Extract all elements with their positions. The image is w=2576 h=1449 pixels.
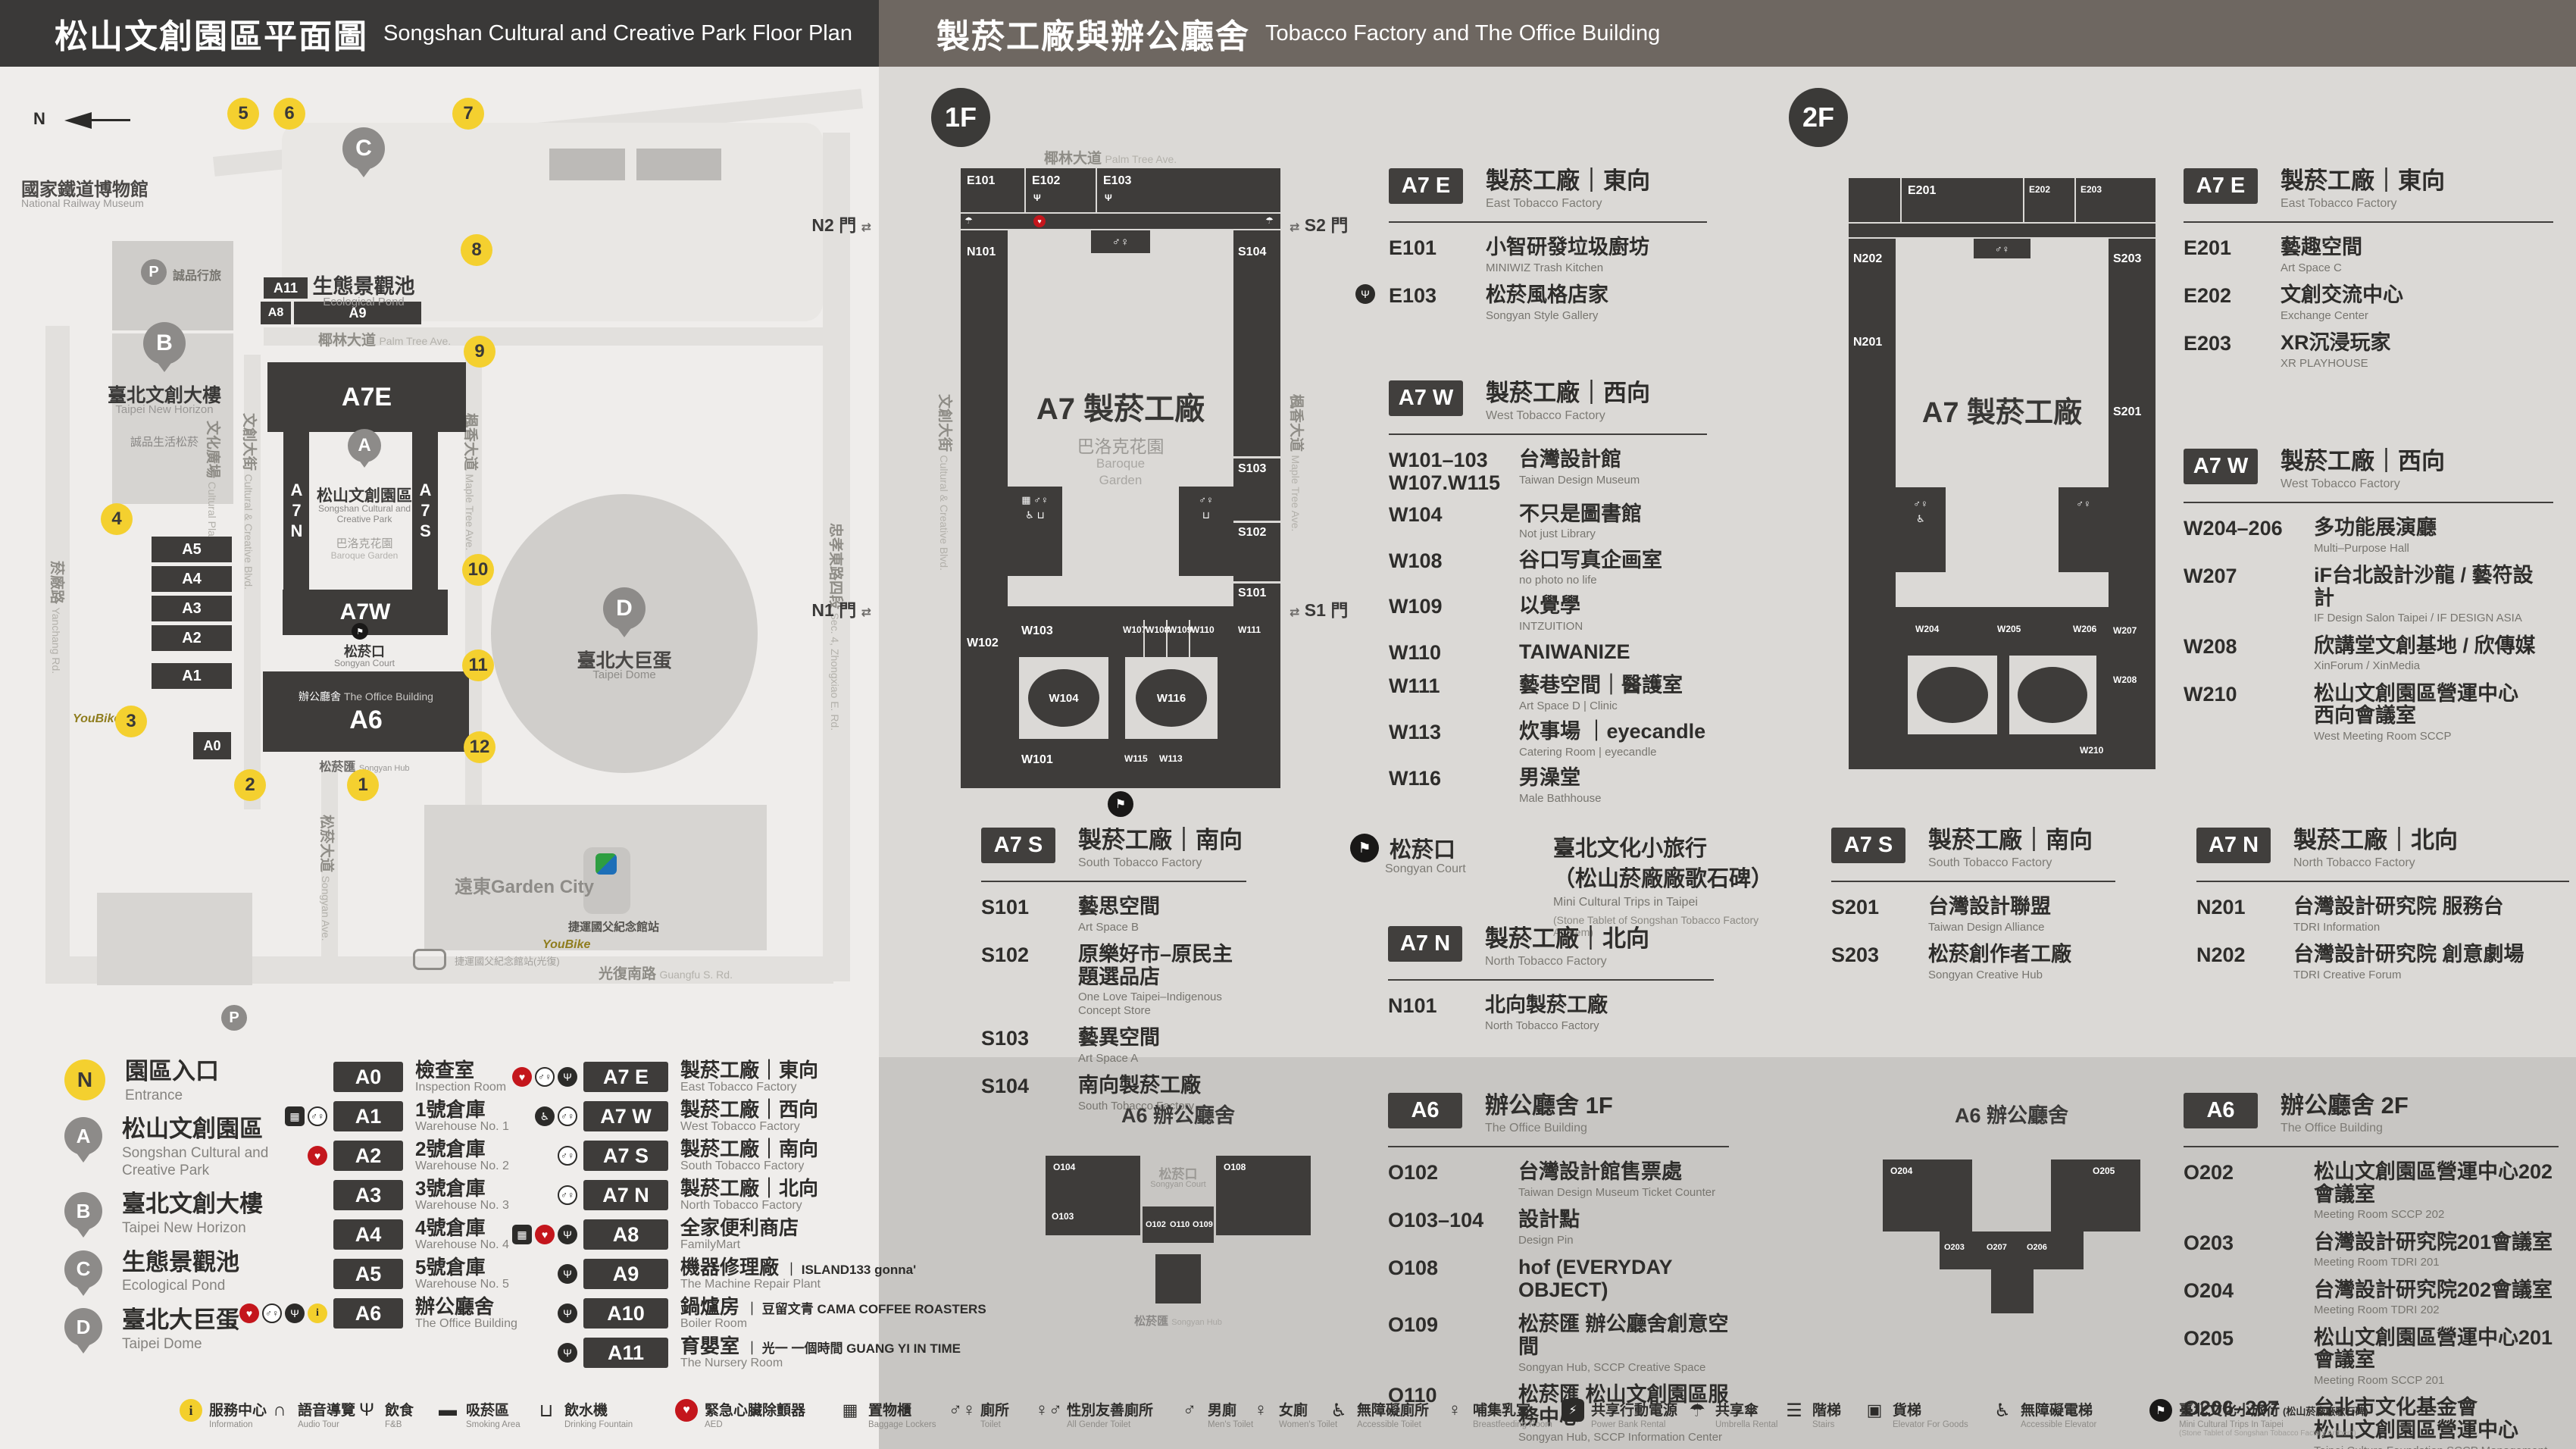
footer-icon: ⚑	[2149, 1399, 2172, 1422]
section-divider	[2184, 1146, 2559, 1147]
section-chip: A7 S	[981, 828, 1055, 863]
legend-row-zh: 1號倉庫	[415, 1098, 485, 1121]
section-en: West Tobacco Factory	[2281, 477, 2445, 491]
legend-row-icons: Ψ	[491, 1264, 583, 1284]
section-chip: A7 N	[1388, 926, 1462, 962]
section-zh: 製菸工廠｜北向	[2293, 828, 2458, 853]
street-zhongxiao-en: Sec. 4, Zhongxiao E. Rd.	[829, 612, 841, 731]
room-separator	[1166, 620, 1168, 662]
legend-pin-zh: 松山文創園區	[122, 1116, 263, 1142]
umbrella-icon: ☂	[1265, 215, 1274, 226]
legend-pin-row: N 園區入口 Entrance	[64, 1059, 292, 1104]
room-n101-label: N101	[967, 246, 996, 259]
room-zh: 台灣設計研究院202會議室	[2314, 1279, 2553, 1302]
room-zh: 設計點	[1518, 1209, 1580, 1231]
wing-north	[961, 230, 1008, 788]
legend-building-chip: A7 W	[583, 1101, 668, 1131]
room-code: O205	[2184, 1327, 2314, 1388]
section-en: East Tobacco Factory	[2281, 197, 2445, 211]
parking-icon-2: P	[221, 1005, 247, 1031]
footer-icon: ☂	[1686, 1399, 1708, 1422]
section-divider	[2184, 502, 2553, 503]
youbike-label-2: YouBike	[73, 712, 120, 726]
legend-building-chip: A7 N	[583, 1180, 668, 1210]
footer-en: F&B	[385, 1420, 417, 1429]
room-w210-label: W210	[2080, 745, 2103, 756]
legend-row-en: The Nursery Room	[680, 1357, 961, 1369]
entrance-marker: 6	[274, 98, 305, 130]
service-wing-east-icons: ♂♀⊔	[1182, 493, 1230, 522]
room-code: S101	[981, 896, 1078, 934]
room-zh: 松山文創園區營運中心202會議室	[2314, 1161, 2559, 1206]
a6-stem	[1155, 1254, 1201, 1303]
footer-zh: 性別友善廁所	[1067, 1399, 1153, 1419]
directory-row: S102 原樂好市–原民主題選品店 One Love Taipei–Indige…	[981, 944, 1246, 1017]
footer-item: Ψ 飲食 F&B	[355, 1399, 417, 1429]
map-pin-c-label: C	[355, 136, 372, 161]
street-maple: 楓香大道 Maple Tree Ave.	[461, 413, 482, 550]
footer-en: Elevator For Goods	[1893, 1420, 1968, 1429]
north-label: N	[33, 109, 45, 129]
gate-n2-label: N2 門	[811, 215, 856, 235]
room-separator	[1143, 620, 1145, 662]
section-en: East Tobacco Factory	[1486, 197, 1650, 211]
legend-pin-zh: 臺北文創大樓	[122, 1191, 263, 1217]
room-en: Meeting Room TDRI 201	[2314, 1256, 2553, 1269]
floor-1f-badge: 1F	[931, 88, 990, 147]
entrance-marker: 3	[115, 706, 147, 737]
footer-zh: 臺北文化小旅行	[2179, 1399, 2280, 1419]
room-zh: 台灣設計研究院 服務台	[2293, 896, 2504, 919]
room-n201-label: N201	[1853, 336, 1882, 349]
footer-en: Information	[209, 1420, 270, 1429]
footer-icon-legend: i 服務中心 Information ∩ 語音導覽 Audio Tour Ψ 飲…	[0, 1396, 2576, 1449]
room-e102-label: E102	[1032, 174, 1060, 188]
footer-icon: Ψ	[355, 1399, 378, 1422]
a6-hub-line: 松菸匯 Songyan Hub	[1030, 1313, 1326, 1329]
room-zh: 松山文創園區營運中心	[2314, 683, 2518, 706]
legend-row-brand: ｜ 光一 一個時間 GUANG YI IN TIME	[746, 1341, 961, 1356]
footer-icon: ♿	[1991, 1399, 2014, 1422]
footer-icon: ▣	[1863, 1399, 1886, 1422]
section-header: A7 E 製菸工廠｜東向 East Tobacco Factory	[1389, 168, 1707, 211]
section-en: South Tobacco Factory	[1078, 856, 1243, 870]
directory-row: E201 藝趣空間 Art Space C	[2184, 236, 2553, 274]
room-zh: 藝巷空間｜醫護室	[1519, 674, 1683, 697]
footer-zh: 男廁	[1208, 1399, 1236, 1419]
directory-row: O205 松山文創園區營運中心201會議室 Meeting Room SCCP …	[2184, 1327, 2559, 1388]
directory-row: O204 台灣設計研究院202會議室 Meeting Room TDRI 202	[2184, 1279, 2559, 1317]
room-en: TDRI Information	[2293, 921, 2504, 934]
map-block-a1: A1	[152, 663, 232, 689]
room-en: Art Space B	[1078, 921, 1160, 934]
building-block	[549, 149, 625, 180]
toilet-icon: ♂♀	[262, 1303, 282, 1323]
directory-row: S101 藝思空間 Art Space B	[981, 896, 1246, 934]
room-zh: 谷口写真企画室	[1519, 549, 1662, 572]
street-cultural-zh: 文創大街	[241, 413, 257, 471]
footer-zh: 共享傘	[1715, 1399, 1758, 1419]
footer-item: ⚡ 共享行動電源 Power Bank Rental	[1562, 1399, 1680, 1429]
legend-factory-row: Ψ A10 鍋爐房｜ 豆留文青 CAMA COFFEE ROASTERS Boi…	[491, 1297, 986, 1329]
fnb-icon: Ψ	[558, 1067, 577, 1087]
room-en: Songyan Hub, SCCP Creative Space	[1518, 1361, 1729, 1374]
legend-factory-row: ♂♀ A7 S 製菸工廠｜南向 South Tobacco Factory	[491, 1140, 986, 1172]
room-w113-label: W113	[1159, 753, 1183, 764]
court-line2: （松山菸廠廠歌石碑）	[1553, 861, 1773, 893]
footer-icon: ▬	[436, 1399, 459, 1422]
directory-row: W210 松山文創園區營運中心西向會議室 West Meeting Room S…	[2184, 683, 2553, 743]
map-pin-a: A	[348, 429, 381, 462]
aed-icon: ♥	[512, 1067, 532, 1087]
parking-label: P	[148, 264, 158, 281]
footer-item: ♂ 男廁 Men's Toilet	[1178, 1399, 1253, 1429]
footer-item: ♀♂ 性別友善廁所 All Gender Toilet	[1037, 1399, 1156, 1429]
room-en: IF Design Salon Taipei / IF DESIGN ASIA	[2314, 612, 2553, 624]
footer-zh: 服務中心	[209, 1399, 267, 1419]
legend-building-chip: A1	[333, 1101, 403, 1131]
room-w110-label: W110	[1191, 624, 1215, 635]
legend-row-zh: 育嬰室	[680, 1335, 739, 1357]
fnb-icon: Ψ	[1033, 192, 1041, 203]
room-zh: 台灣設計館售票處	[1518, 1161, 1715, 1184]
room-w116-label: W116	[1157, 692, 1186, 705]
entrance-marker: 11	[462, 649, 494, 681]
floor-2f-badge: 2F	[1789, 88, 1848, 147]
room-o206-label: O206	[2027, 1243, 2047, 1252]
section-zh: 辦公廳舍 2F	[2281, 1093, 2409, 1119]
legend-row-zh: 檢查室	[415, 1059, 474, 1081]
room-w205-label: W205	[1997, 624, 2021, 634]
left-title-en: Songshan Cultural and Creative Park Floo…	[383, 21, 852, 46]
directory-row: W111 藝巷空間｜醫護室 Art Space D | Clinic	[1389, 674, 1707, 712]
room-separator	[1189, 620, 1190, 662]
legend-row-zh: 全家便利商店	[680, 1216, 799, 1239]
legend-row-zh: 4號倉庫	[415, 1216, 485, 1239]
footer-en: Accessible Toilet	[1357, 1420, 1432, 1429]
gate-n1-label: N1 門	[811, 600, 856, 620]
room-code: S203	[1831, 944, 1928, 981]
directory-row: E203 XR沉浸玩家 XR PLAYHOUSE	[2184, 332, 2553, 370]
lockers-icon: ▦	[1021, 494, 1030, 505]
gate-n1: N1 門 ⇄	[788, 596, 871, 621]
oval-hall-2f	[1917, 667, 1988, 723]
legend-warehouses: A0 檢查室 Inspection Room ▦♂♀ A1 1號倉庫 Wareh…	[267, 1061, 517, 1329]
legend-building-chip: A2	[333, 1141, 403, 1171]
room-zh: 文創交流中心	[2281, 284, 2403, 307]
accessible-icon: ♿	[1916, 513, 1925, 524]
entrance-marker: 2	[234, 769, 266, 801]
section-en: The Office Building	[1485, 1122, 1613, 1135]
room-zh: 松菸創作者工廠	[1928, 944, 2071, 966]
room-separator	[1233, 521, 1280, 523]
section-chip: A7 W	[1389, 380, 1463, 416]
plan1f-street-right-en: Maple Tree Ave.	[1290, 455, 1302, 531]
room-zh: 台灣設計聯盟	[1928, 896, 2051, 919]
wing-south-2f	[2109, 239, 2156, 769]
room-code: E202	[2184, 284, 2281, 322]
legend-building-chip: A3	[333, 1180, 403, 1210]
a6-2f-stem	[1991, 1269, 2034, 1313]
room-en: MINIWIZ Trash Kitchen	[1486, 261, 1649, 274]
directory-row: W204–206 多功能展演廳 Multi–Purpose Hall	[2184, 517, 2553, 555]
room-en: Songyan Style Gallery	[1486, 309, 1608, 322]
map-block-a2: A2	[152, 625, 232, 651]
north-arrow-icon	[56, 112, 92, 129]
section-header: A6 辦公廳舍 2F The Office Building	[2184, 1093, 2559, 1135]
room-code: S103	[981, 1027, 1078, 1065]
section-zh: 製菸工廠｜南向	[1928, 828, 2093, 853]
directory-row: E202 文創交流中心 Exchange Center	[2184, 284, 2553, 322]
legend-row-icons: Ψ	[491, 1303, 583, 1323]
room-code: W116	[1389, 767, 1441, 790]
section-en: North Tobacco Factory	[1485, 955, 1649, 969]
service-wing-west-icons: ▦ ♂♀♿ ⊔	[1011, 493, 1059, 522]
room-o203-label: O203	[1944, 1243, 1965, 1252]
a6-plan-2f: O204 O205 O203 O207 O206	[1864, 1122, 2159, 1349]
footer-en: Audio Tour	[298, 1420, 358, 1429]
footer-icon: ⚡	[1562, 1399, 1584, 1422]
room-w101-label: W101	[1021, 753, 1053, 767]
street-yanchang-zh: 菸廠路	[48, 561, 64, 604]
map-block-a4: A4	[152, 566, 232, 592]
legend-pin-letter: N	[77, 1068, 92, 1092]
footer-en: Smoking Area	[466, 1420, 521, 1429]
footer-zh: 貨梯	[1893, 1399, 1921, 1419]
section-a7w-1f: A7 W 製菸工廠｜西向 West Tobacco Factory W101–1…	[1389, 380, 1707, 813]
poster: 松山文創園區平面圖 Songshan Cultural and Creative…	[0, 0, 2576, 1449]
footer-zh: 緊急心臟除顫器	[705, 1399, 805, 1419]
wing-north-2f	[1849, 239, 1896, 769]
entrance-marker-number: 1	[358, 775, 367, 796]
room-code: O102	[1388, 1161, 1518, 1199]
room-en: no photo no life	[1519, 574, 1662, 587]
room-n202-label: N202	[1853, 252, 1882, 266]
cinema-block	[97, 893, 252, 985]
room-code: O108	[1388, 1257, 1518, 1303]
gate-arrows-icon: ⇄	[1290, 606, 1299, 619]
entrance-marker-number: 7	[463, 103, 473, 124]
legend-building-chip: A7 S	[583, 1141, 668, 1171]
floorplan-2f: E201 E202 E203 N202 N201 S203 S201 ♂♀ ♂♀…	[1849, 178, 2156, 769]
section-zh: 製菸工廠｜南向	[1078, 828, 1243, 853]
map-dome-en: Taipei Dome	[564, 668, 685, 681]
map-court-icon: ⚑	[352, 623, 368, 640]
entrance-marker: 7	[452, 98, 484, 130]
section-a7s-2f: A7 S 製菸工廠｜南向 South Tobacco Factory S201 …	[1831, 828, 2115, 991]
footer-item: ♀ 哺集乳室 Breastfeeding Room	[1443, 1399, 1552, 1429]
toilet-icon: ♂♀	[1199, 494, 1214, 505]
room-code: W208	[2184, 635, 2314, 673]
left-title-zh: 松山文創園區平面圖	[55, 9, 368, 58]
legend-row-zh: 5號倉庫	[415, 1256, 485, 1278]
accessible-icon: ♿	[1025, 509, 1034, 521]
section-chip: A7 S	[1831, 828, 1905, 863]
court-zh: 松菸口	[1390, 832, 1455, 864]
bus-stop-label: 捷運國父紀念館站(光復)	[455, 953, 560, 968]
plan1f-street-top: 椰林大道 Palm Tree Ave.	[1044, 147, 1177, 167]
room-s104-label: S104	[1238, 246, 1266, 259]
legend-pin-zh: 生態景觀池	[122, 1249, 239, 1275]
map-block-a6: 辦公廳舍 The Office Building A6	[263, 671, 469, 752]
map-court-en: Songyan Court	[296, 658, 433, 668]
footer-en: Toilet	[980, 1420, 1012, 1429]
room-code: W101–103	[1389, 449, 1488, 471]
footer-en: Stairs	[1812, 1420, 1844, 1429]
room-zh: 台灣設計研究院201會議室	[2314, 1231, 2553, 1254]
cultural-plaza-zh: 文化廣場	[205, 421, 220, 478]
toilet-icon: ♂♀	[2076, 498, 2091, 509]
footer-zh: 共享行動電源	[1591, 1399, 1677, 1419]
gate-arrows-icon: ⇄	[861, 606, 871, 619]
plan1f-baroque-en1: Baroque	[961, 456, 1280, 471]
room-zh2: 西向會議室	[2314, 705, 2518, 728]
room-zh: 松菸匯 辦公廳舍創意空間	[1518, 1313, 1729, 1358]
room-s203-label: S203	[2113, 252, 2141, 266]
footer-zh: 飲食	[385, 1399, 414, 1419]
legend-row-zh: 製菸工廠｜西向	[680, 1098, 818, 1121]
directory-row: W104 不只是圖書館 Not just Library	[1389, 503, 1707, 541]
toilet-icon: ♂♀	[1033, 494, 1049, 505]
eslite-hotel-label: 誠品行旅	[173, 265, 221, 283]
entrance-marker: 8	[461, 234, 492, 266]
entrance-marker: 10	[462, 554, 494, 586]
section-header: A7 E 製菸工廠｜東向 East Tobacco Factory	[2184, 168, 2553, 211]
gate-s1: ⇄ S1 門	[1290, 596, 1348, 621]
footer-icon: ♿	[1327, 1399, 1350, 1422]
room-en: XinForum / XinMedia	[2314, 659, 2536, 672]
room-code: W104	[1389, 503, 1443, 526]
room-w116: W116	[1136, 669, 1207, 727]
legend-pin-badge: C	[64, 1250, 102, 1288]
room-code: N202	[2196, 944, 2293, 981]
street-songyan-ave: 松菸大道 Songyan Ave.	[317, 815, 338, 941]
room-code: E203	[2184, 332, 2281, 370]
directory-row: S103 藝異空間 Art Space A	[981, 1027, 1246, 1065]
wing-south	[1233, 230, 1280, 788]
footer-item: ⊔ 飲水機 Drinking Fountain	[535, 1399, 633, 1429]
legend-row-brand: ｜ 豆留文青 CAMA COFFEE ROASTERS	[746, 1302, 986, 1316]
legend-row-en: FamilyMart	[680, 1239, 805, 1251]
a6-hub-en: Songyan Hub	[1171, 1318, 1222, 1327]
room-code: W113	[1389, 721, 1441, 743]
legend-building-chip: A0	[333, 1062, 403, 1092]
room-en: Art Space D | Clinic	[1519, 699, 1683, 712]
legend-building-chip: A5	[333, 1259, 403, 1289]
plan1f-street-left: 文創大街 Cultural & Creative Blvd.	[936, 394, 956, 571]
legend-factory-row: ♥♂♀Ψ A7 E 製菸工廠｜東向 East Tobacco Factory	[491, 1061, 986, 1093]
footer-item: ∩ 語音導覽 Audio Tour	[268, 1399, 358, 1429]
right-title-zh: 製菸工廠與辦公廳舍	[936, 9, 1250, 58]
legend-row-icons: ♿♂♀	[491, 1106, 583, 1126]
room-en: Multi–Purpose Hall	[2314, 542, 2437, 555]
parking-label-2: P	[229, 1009, 239, 1027]
legend-row-en: East Tobacco Factory	[680, 1081, 824, 1094]
footer-icon: ∩	[268, 1399, 291, 1422]
section-header: A7 S 製菸工廠｜南向 South Tobacco Factory	[981, 828, 1246, 870]
map-pin-a-label: A	[358, 435, 370, 456]
room-en: Not just Library	[1519, 527, 1642, 540]
left-header: 松山文創園區平面圖 Songshan Cultural and Creative…	[0, 0, 879, 67]
entrance-marker-number: 6	[284, 103, 294, 124]
footer-icon: ♂	[1178, 1399, 1201, 1422]
plan1f-street-right-zh: 楓香大道	[1288, 394, 1304, 452]
plan1f-street-left-zh: 文創大街	[936, 394, 952, 452]
legend-row-zh: 辦公廳舍	[415, 1295, 494, 1318]
section-divider	[1389, 433, 1707, 435]
section-a7n-2f: A7 N 製菸工廠｜北向 North Tobacco Factory N201 …	[2196, 828, 2569, 991]
street-maple-en: Maple Tree Ave.	[464, 474, 476, 550]
footer-item: ⚑ 臺北文化小旅行(松山菸廠廠歌石碑) Mini Cultural Trips …	[2149, 1399, 2368, 1438]
legend-warehouse-row: A3 3號倉庫 Warehouse No. 3	[267, 1179, 517, 1211]
room-en: TDRI Creative Forum	[2293, 969, 2524, 981]
room-en: Meeting Room SCCP 202	[2314, 1208, 2559, 1221]
directory-row: W108 谷口写真企画室 no photo no life	[1389, 549, 1707, 587]
legend-row-icons: ▦♥Ψ	[491, 1225, 583, 1244]
entrance-marker-number: 11	[468, 655, 487, 676]
street-palm-en: Palm Tree Ave.	[379, 335, 451, 347]
legend-pin-badge: N	[64, 1059, 105, 1100]
fnb-icon: Ψ	[1355, 284, 1375, 304]
street-yanchang: 菸廠路 Yanchang Rd.	[48, 561, 68, 674]
footer-icon: ⊔	[535, 1399, 558, 1422]
footer-item: ♥ 緊急心臟除顫器 AED	[675, 1399, 808, 1429]
directory-row: N201 台灣設計研究院 服務台 TDRI Information	[2196, 896, 2569, 934]
room-w208-label: W208	[2113, 674, 2137, 685]
room-zh: 松山文創園區營運中心201會議室	[2314, 1327, 2559, 1372]
legend-factory-row: Ψ A11 育嬰室｜ 光一 一個時間 GUANG YI IN TIME The …	[491, 1337, 986, 1369]
legend-row-brand: ｜ ISLAND133 gonna'	[785, 1263, 916, 1277]
gate-n2: N2 門 ⇄	[788, 211, 871, 236]
room-o207-label: O207	[1987, 1243, 2007, 1252]
entrance-marker-number: 5	[238, 103, 248, 124]
room-w104-label: W104	[1049, 692, 1078, 705]
room-code: E201	[2184, 236, 2281, 274]
section-divider	[1831, 881, 2115, 882]
legend-building-chip: A6	[333, 1298, 403, 1329]
section-header: A7 W 製菸工廠｜西向 West Tobacco Factory	[2184, 449, 2553, 491]
map-horizon-en: Taipei New Horizon	[104, 403, 225, 416]
legend-building-chip: A11	[583, 1338, 668, 1368]
gate-arrows-icon: ⇄	[1290, 221, 1299, 234]
map-a6-office-zh: 辦公廳舍	[299, 690, 341, 703]
legend-building-chip: A4	[333, 1219, 403, 1250]
plan2f-top-fill	[1849, 178, 1900, 222]
toilet-stub: ♂♀	[1091, 230, 1150, 253]
map-pin-d: D	[603, 587, 646, 630]
legend-pin-en: Taipei Dome	[122, 1336, 239, 1354]
lockers-icon: ▦	[512, 1225, 532, 1244]
room-w207-label: W207	[2113, 625, 2137, 636]
footer-icon: ♂♀	[951, 1399, 974, 1422]
section-header: A7 W 製菸工廠｜西向 West Tobacco Factory	[1389, 380, 1707, 423]
legend-warehouse-row: ♥ A2 2號倉庫 Warehouse No. 2	[267, 1140, 517, 1172]
legend-row-icons: ♂♀	[491, 1146, 583, 1166]
footer-item: i 服務中心 Information	[180, 1399, 270, 1429]
entrance-marker-number: 12	[470, 737, 490, 758]
section-divider	[1389, 221, 1707, 223]
footer-en: Power Bank Rental	[1591, 1420, 1680, 1429]
room-w204-label: W204	[1915, 624, 1939, 634]
room-code: N101	[1388, 994, 1485, 1032]
legend-row-zh: 製菸工廠｜東向	[680, 1059, 818, 1081]
room-zh: 不只是圖書館	[1519, 503, 1642, 526]
map-block-a3: A3	[152, 596, 232, 621]
parking-icon: P	[141, 259, 167, 285]
footer-zh2: (松山菸廠廠歌石碑)	[2283, 1406, 2368, 1417]
footer-en: Drinking Fountain	[564, 1420, 633, 1429]
street-guangfu-en: Guangfu S. Rd.	[659, 969, 733, 981]
